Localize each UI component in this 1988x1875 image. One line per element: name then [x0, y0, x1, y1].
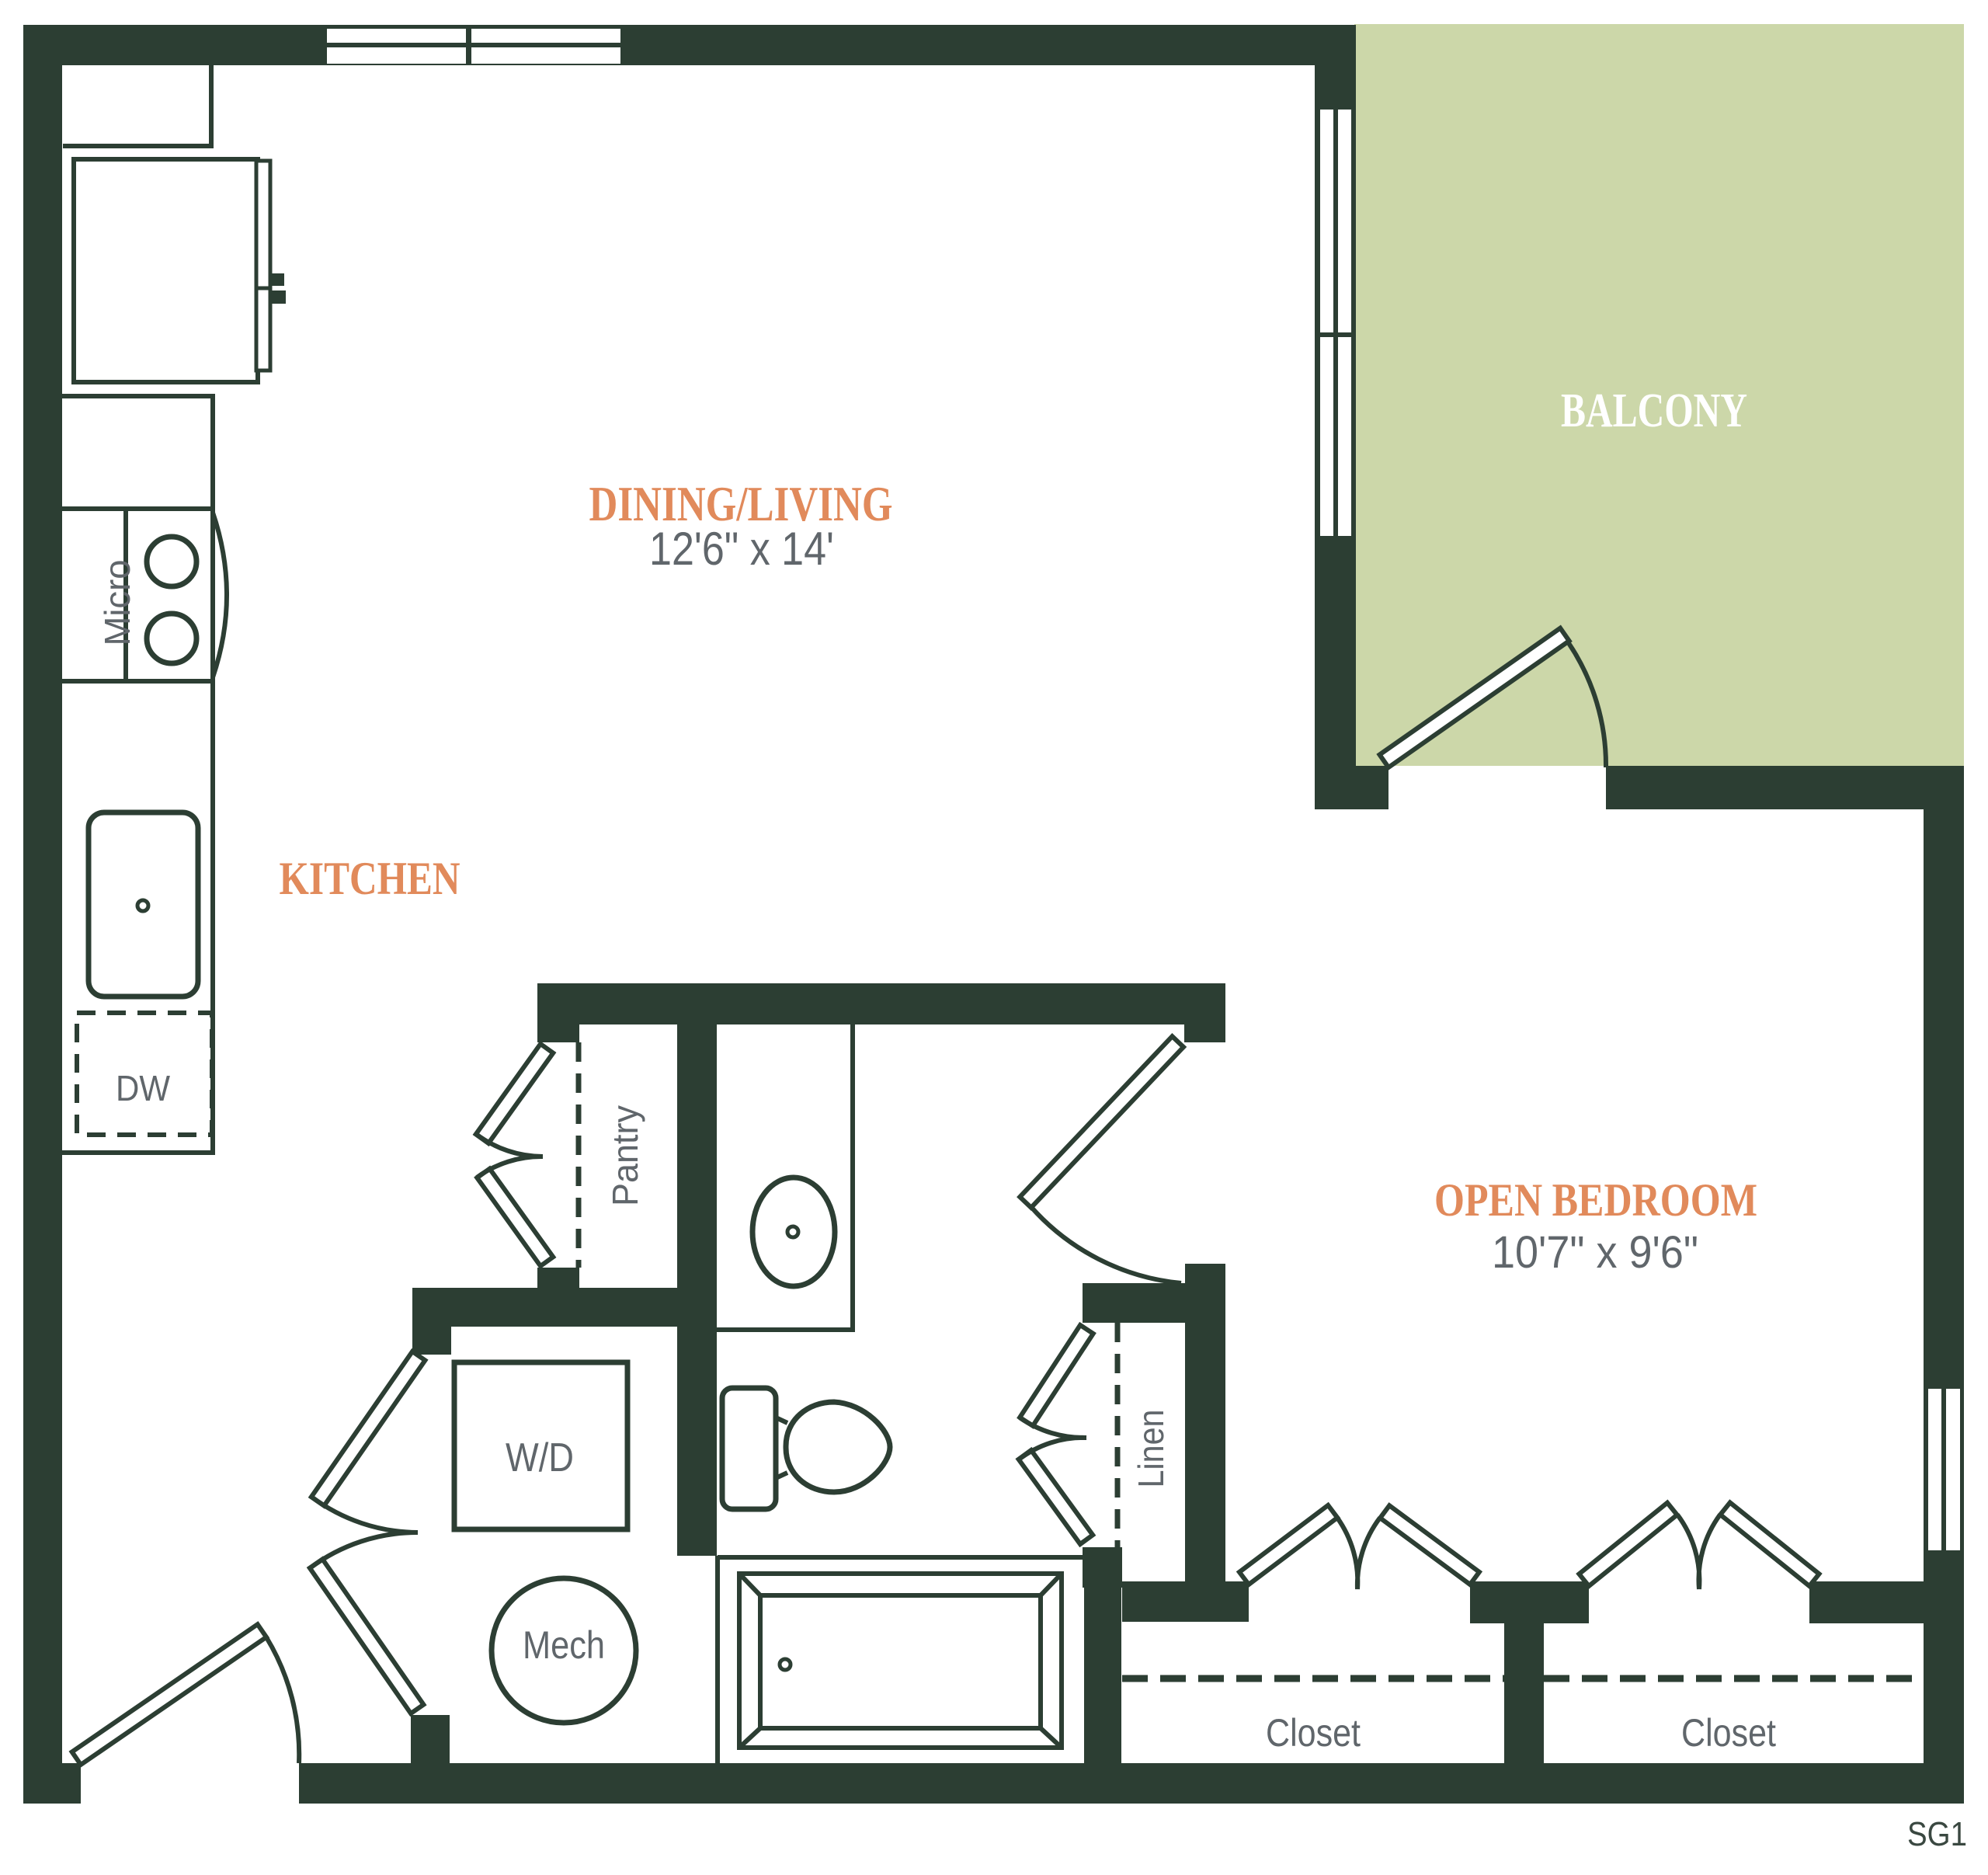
svg-text:DW: DW: [116, 1068, 171, 1108]
svg-text:Micro: Micro: [97, 560, 137, 646]
svg-text:12'6" x 14': 12'6" x 14': [649, 523, 834, 575]
svg-text:Mech: Mech: [523, 1623, 605, 1667]
svg-text:Closet: Closet: [1266, 1711, 1361, 1755]
svg-text:W/D: W/D: [506, 1435, 574, 1480]
svg-text:10'7" x 9'6": 10'7" x 9'6": [1492, 1227, 1698, 1278]
svg-text:BALCONY: BALCONY: [1561, 384, 1747, 437]
svg-text:OPEN BEDROOM: OPEN BEDROOM: [1434, 1174, 1757, 1226]
svg-text:Linen: Linen: [1131, 1410, 1171, 1488]
svg-text:Pantry: Pantry: [605, 1105, 645, 1206]
svg-text:KITCHEN: KITCHEN: [280, 853, 461, 904]
svg-text:SG1: SG1: [1907, 1815, 1967, 1853]
svg-text:Closet: Closet: [1681, 1711, 1776, 1755]
